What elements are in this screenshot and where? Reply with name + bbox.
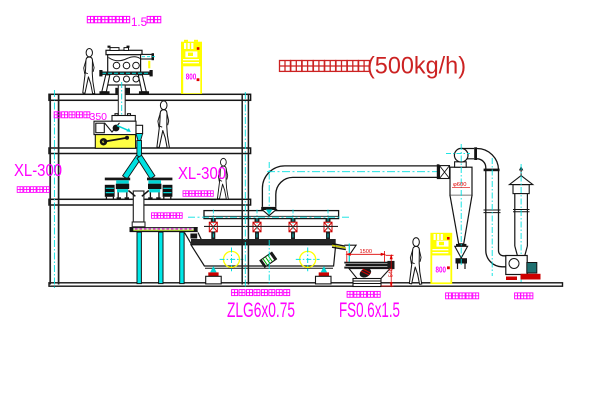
svg-text:XL-300: XL-300 <box>14 160 62 180</box>
svg-text:800: 800 <box>436 265 447 275</box>
svg-text:800: 800 <box>186 72 197 82</box>
svg-text:FS0.6x1.5: FS0.6x1.5 <box>339 299 400 322</box>
svg-text:350: 350 <box>90 111 108 123</box>
svg-text:1.5: 1.5 <box>131 17 147 29</box>
svg-text:(500kg/h): (500kg/h) <box>367 53 466 80</box>
svg-text:1500: 1500 <box>360 249 372 255</box>
svg-text:XL-300: XL-300 <box>178 163 226 183</box>
svg-text:ZLG6x0.75: ZLG6x0.75 <box>227 299 295 322</box>
svg-text:540: 540 <box>389 268 395 277</box>
